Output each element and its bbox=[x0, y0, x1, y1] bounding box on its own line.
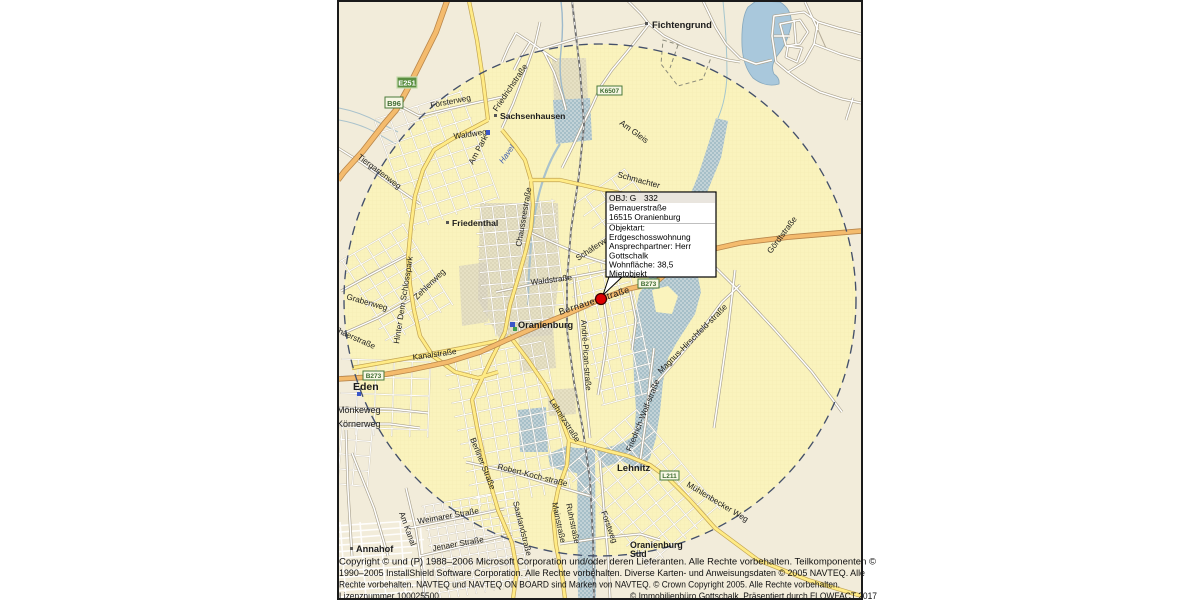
svg-text:OBJ: G: OBJ: G bbox=[609, 193, 636, 203]
svg-text:E251: E251 bbox=[398, 79, 416, 88]
svg-text:Friedenthal: Friedenthal bbox=[452, 218, 498, 228]
svg-text:332: 332 bbox=[644, 193, 658, 203]
svg-text:1990–2005 InstallShield Softwa: 1990–2005 InstallShield Software Corpora… bbox=[339, 567, 865, 578]
svg-text:Mietobjekt: Mietobjekt bbox=[609, 268, 648, 278]
svg-text:16515 Oranienburg: 16515 Oranienburg bbox=[609, 212, 681, 222]
svg-text:Körnerweg: Körnerweg bbox=[337, 419, 381, 429]
svg-text:Eden: Eden bbox=[353, 381, 379, 393]
svg-text:Lehnitz: Lehnitz bbox=[617, 463, 650, 474]
svg-text:L211: L211 bbox=[662, 473, 677, 480]
svg-text:Mönkeweg: Mönkeweg bbox=[337, 405, 381, 415]
svg-text:Annahof: Annahof bbox=[356, 544, 394, 554]
svg-text:B273: B273 bbox=[366, 373, 382, 380]
svg-text:Fichtengrund: Fichtengrund bbox=[652, 19, 712, 30]
svg-text:B273: B273 bbox=[641, 281, 657, 288]
svg-text:Rechte vorbehalten. NAVTEQ und: Rechte vorbehalten. NAVTEQ und NAVTEQ ON… bbox=[339, 579, 840, 590]
svg-text:B96: B96 bbox=[387, 99, 401, 108]
svg-text:Copyright © und (P) 1988–2006: Copyright © und (P) 1988–2006 Microsoft … bbox=[339, 556, 876, 567]
svg-text:Oranienburg: Oranienburg bbox=[518, 320, 573, 330]
svg-text:Sachsenhausen: Sachsenhausen bbox=[500, 111, 565, 121]
svg-text:K6507: K6507 bbox=[600, 88, 620, 95]
svg-text:Bernauerstraße: Bernauerstraße bbox=[609, 203, 667, 213]
